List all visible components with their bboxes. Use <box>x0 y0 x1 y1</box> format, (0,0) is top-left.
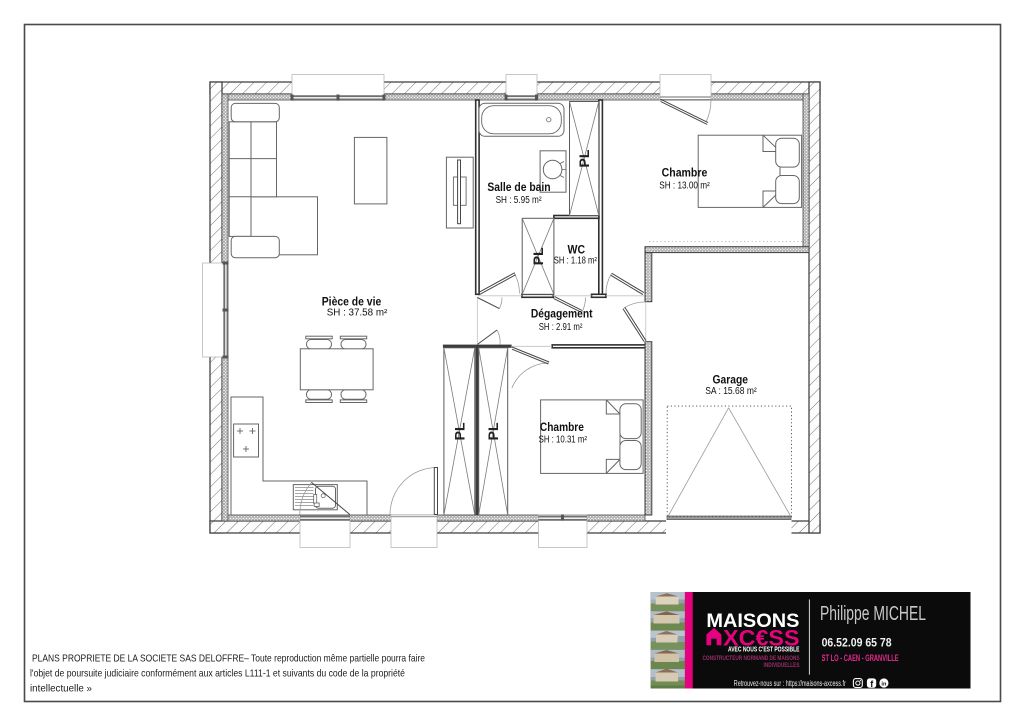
svg-text:Chambre: Chambre <box>662 168 708 180</box>
svg-text:PL: PL <box>530 247 546 265</box>
svg-text:PLANS PROPRIETE DE LA SOCIETE: PLANS PROPRIETE DE LA SOCIETE SAS DELOFF… <box>32 654 425 665</box>
svg-text:SH : 5.95 m²: SH : 5.95 m² <box>496 195 543 206</box>
svg-text:PL: PL <box>451 422 467 440</box>
svg-text:Chambre: Chambre <box>540 422 584 434</box>
svg-text:ST LO - CAEN - GRANVILLE: ST LO - CAEN - GRANVILLE <box>822 653 899 663</box>
svg-text:SH : 2.91 m²: SH : 2.91 m² <box>539 322 583 333</box>
svg-text:06.52.09 65 78: 06.52.09 65 78 <box>822 638 893 650</box>
svg-text:SH : 37.58 m²: SH : 37.58 m² <box>327 308 388 319</box>
svg-text:SA : 15.68 m²: SA : 15.68 m² <box>705 386 757 397</box>
svg-text:Garage: Garage <box>713 375 749 387</box>
svg-text:SH : 1.18 m²: SH : 1.18 m² <box>554 256 598 267</box>
svg-text:INDIVIDUELLES: INDIVIDUELLES <box>764 662 800 669</box>
svg-text:AVEC NOUS C'EST POSSIBLE: AVEC NOUS C'EST POSSIBLE <box>728 646 800 653</box>
svg-text:intellectuelle »: intellectuelle » <box>30 684 92 695</box>
svg-text:SH : 10.31 m²: SH : 10.31 m² <box>539 435 588 446</box>
svg-text:Philippe MICHEL: Philippe MICHEL <box>820 603 926 625</box>
svg-text:PL: PL <box>485 422 501 440</box>
svg-text:SH : 13.00 m²: SH : 13.00 m² <box>659 180 710 191</box>
svg-text:in: in <box>881 682 887 688</box>
svg-text:Salle de bain: Salle de bain <box>487 182 550 194</box>
svg-text:Dégagement: Dégagement <box>531 309 593 321</box>
svg-text:Retrouvez-nous sur : https://m: Retrouvez-nous sur : https://maisons-axc… <box>734 679 846 688</box>
svg-text:l'objet de poursuite judiciair: l'objet de poursuite judiciaire conformé… <box>30 669 405 680</box>
svg-text:PL: PL <box>576 149 592 167</box>
